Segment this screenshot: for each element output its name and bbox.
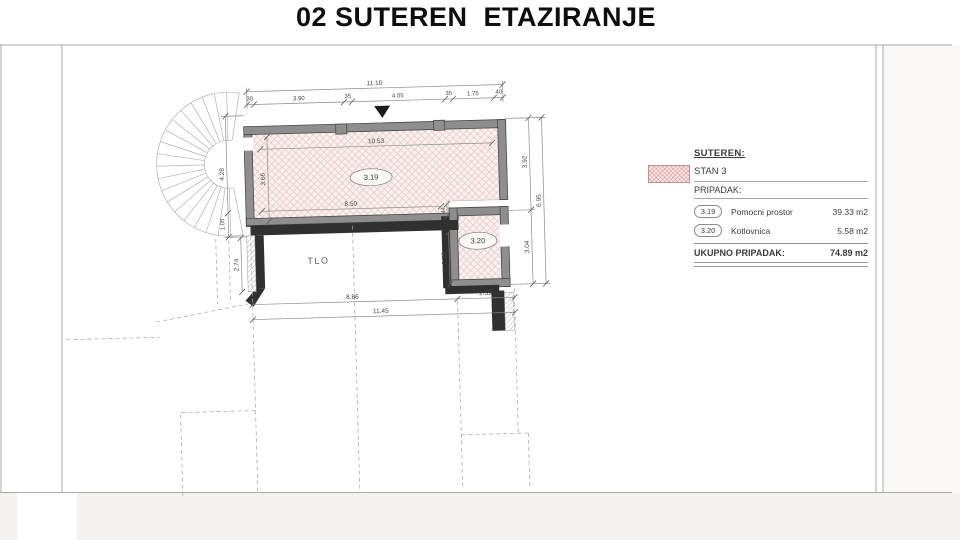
dim-seg-35a: 35 <box>344 94 352 100</box>
dim-top-total: 11.10 <box>366 80 382 87</box>
dim-left-upper: 4.28 <box>219 168 226 181</box>
dim-seg-30: 30 <box>246 96 254 102</box>
legend-total-row: UKUPNO PRIPADAK: 74.89 m2 <box>694 243 868 258</box>
dim-room2-height: 2.75 <box>441 251 448 264</box>
dim-seg-35b: 35 <box>445 91 453 97</box>
legend-row-319: 3.19 Pomocni prostor 39.33 m2 <box>694 205 868 218</box>
legend-stan: STAN 3 <box>694 166 868 182</box>
legend-total-value: 74.89 m2 <box>830 248 868 258</box>
dim-right-total: 6.95 <box>536 194 543 207</box>
dim-bottom-total: 11.45 <box>373 308 389 315</box>
legend-end-rule <box>694 262 868 267</box>
legend-swatch-stan3 <box>648 165 690 183</box>
dim-left-mid: 1.05 <box>220 218 226 231</box>
legend-code-319: 3.19 <box>694 205 722 218</box>
legend-area-320: 5.58 m2 <box>837 226 868 236</box>
room-319-label: 3.19 <box>364 173 379 182</box>
dim-seg-405: 4.05 <box>392 93 405 99</box>
legend-section-pripadak: PRIPADAK: <box>694 182 868 199</box>
tlo-label: TLO <box>307 255 329 266</box>
dim-right-upper: 3.92 <box>522 155 529 168</box>
legend-heading: SUTEREN: <box>694 148 868 159</box>
spiral-staircase <box>155 92 244 238</box>
room-320-label: 3.20 <box>470 236 485 245</box>
dim-seg-40: 40 <box>495 90 503 96</box>
marker-triangle-icon <box>374 106 390 118</box>
dim-seg-175: 1.75 <box>467 91 480 97</box>
dim-inner-bottom: 8.50 <box>344 201 357 208</box>
legend-code-320: 3.20 <box>694 224 722 237</box>
dim-bottom-left: 8.86 <box>346 294 359 301</box>
dim-bottom-right: 2.59 <box>479 290 492 297</box>
legend: SUTEREN: STAN 3 PRIPADAK: 3.19 Pomocni p… <box>694 148 868 267</box>
legend-name-320: Kotlovnica <box>731 226 837 236</box>
legend-total-label: UKUPNO PRIPADAK: <box>694 248 785 258</box>
dim-seg-390: 3.90 <box>293 96 306 102</box>
dim-right-lower: 3.04 <box>524 240 531 253</box>
legend-area-319: 39.33 m2 <box>833 207 868 217</box>
dim-gap-44: 44 <box>441 207 447 213</box>
dim-left-lower: 2.74 <box>233 258 240 271</box>
legend-name-319: Pomocni prostor <box>731 207 833 217</box>
dim-inner-top: 10.53 <box>368 138 385 145</box>
legend-row-320: 3.20 Kotlovnica 5.58 m2 <box>694 224 868 237</box>
dim-inner-left: 3.66 <box>260 172 267 185</box>
floor-plan-svg: 11.10 30 3.90 35 4.05 35 1.75 40 10.53 8… <box>0 0 960 540</box>
